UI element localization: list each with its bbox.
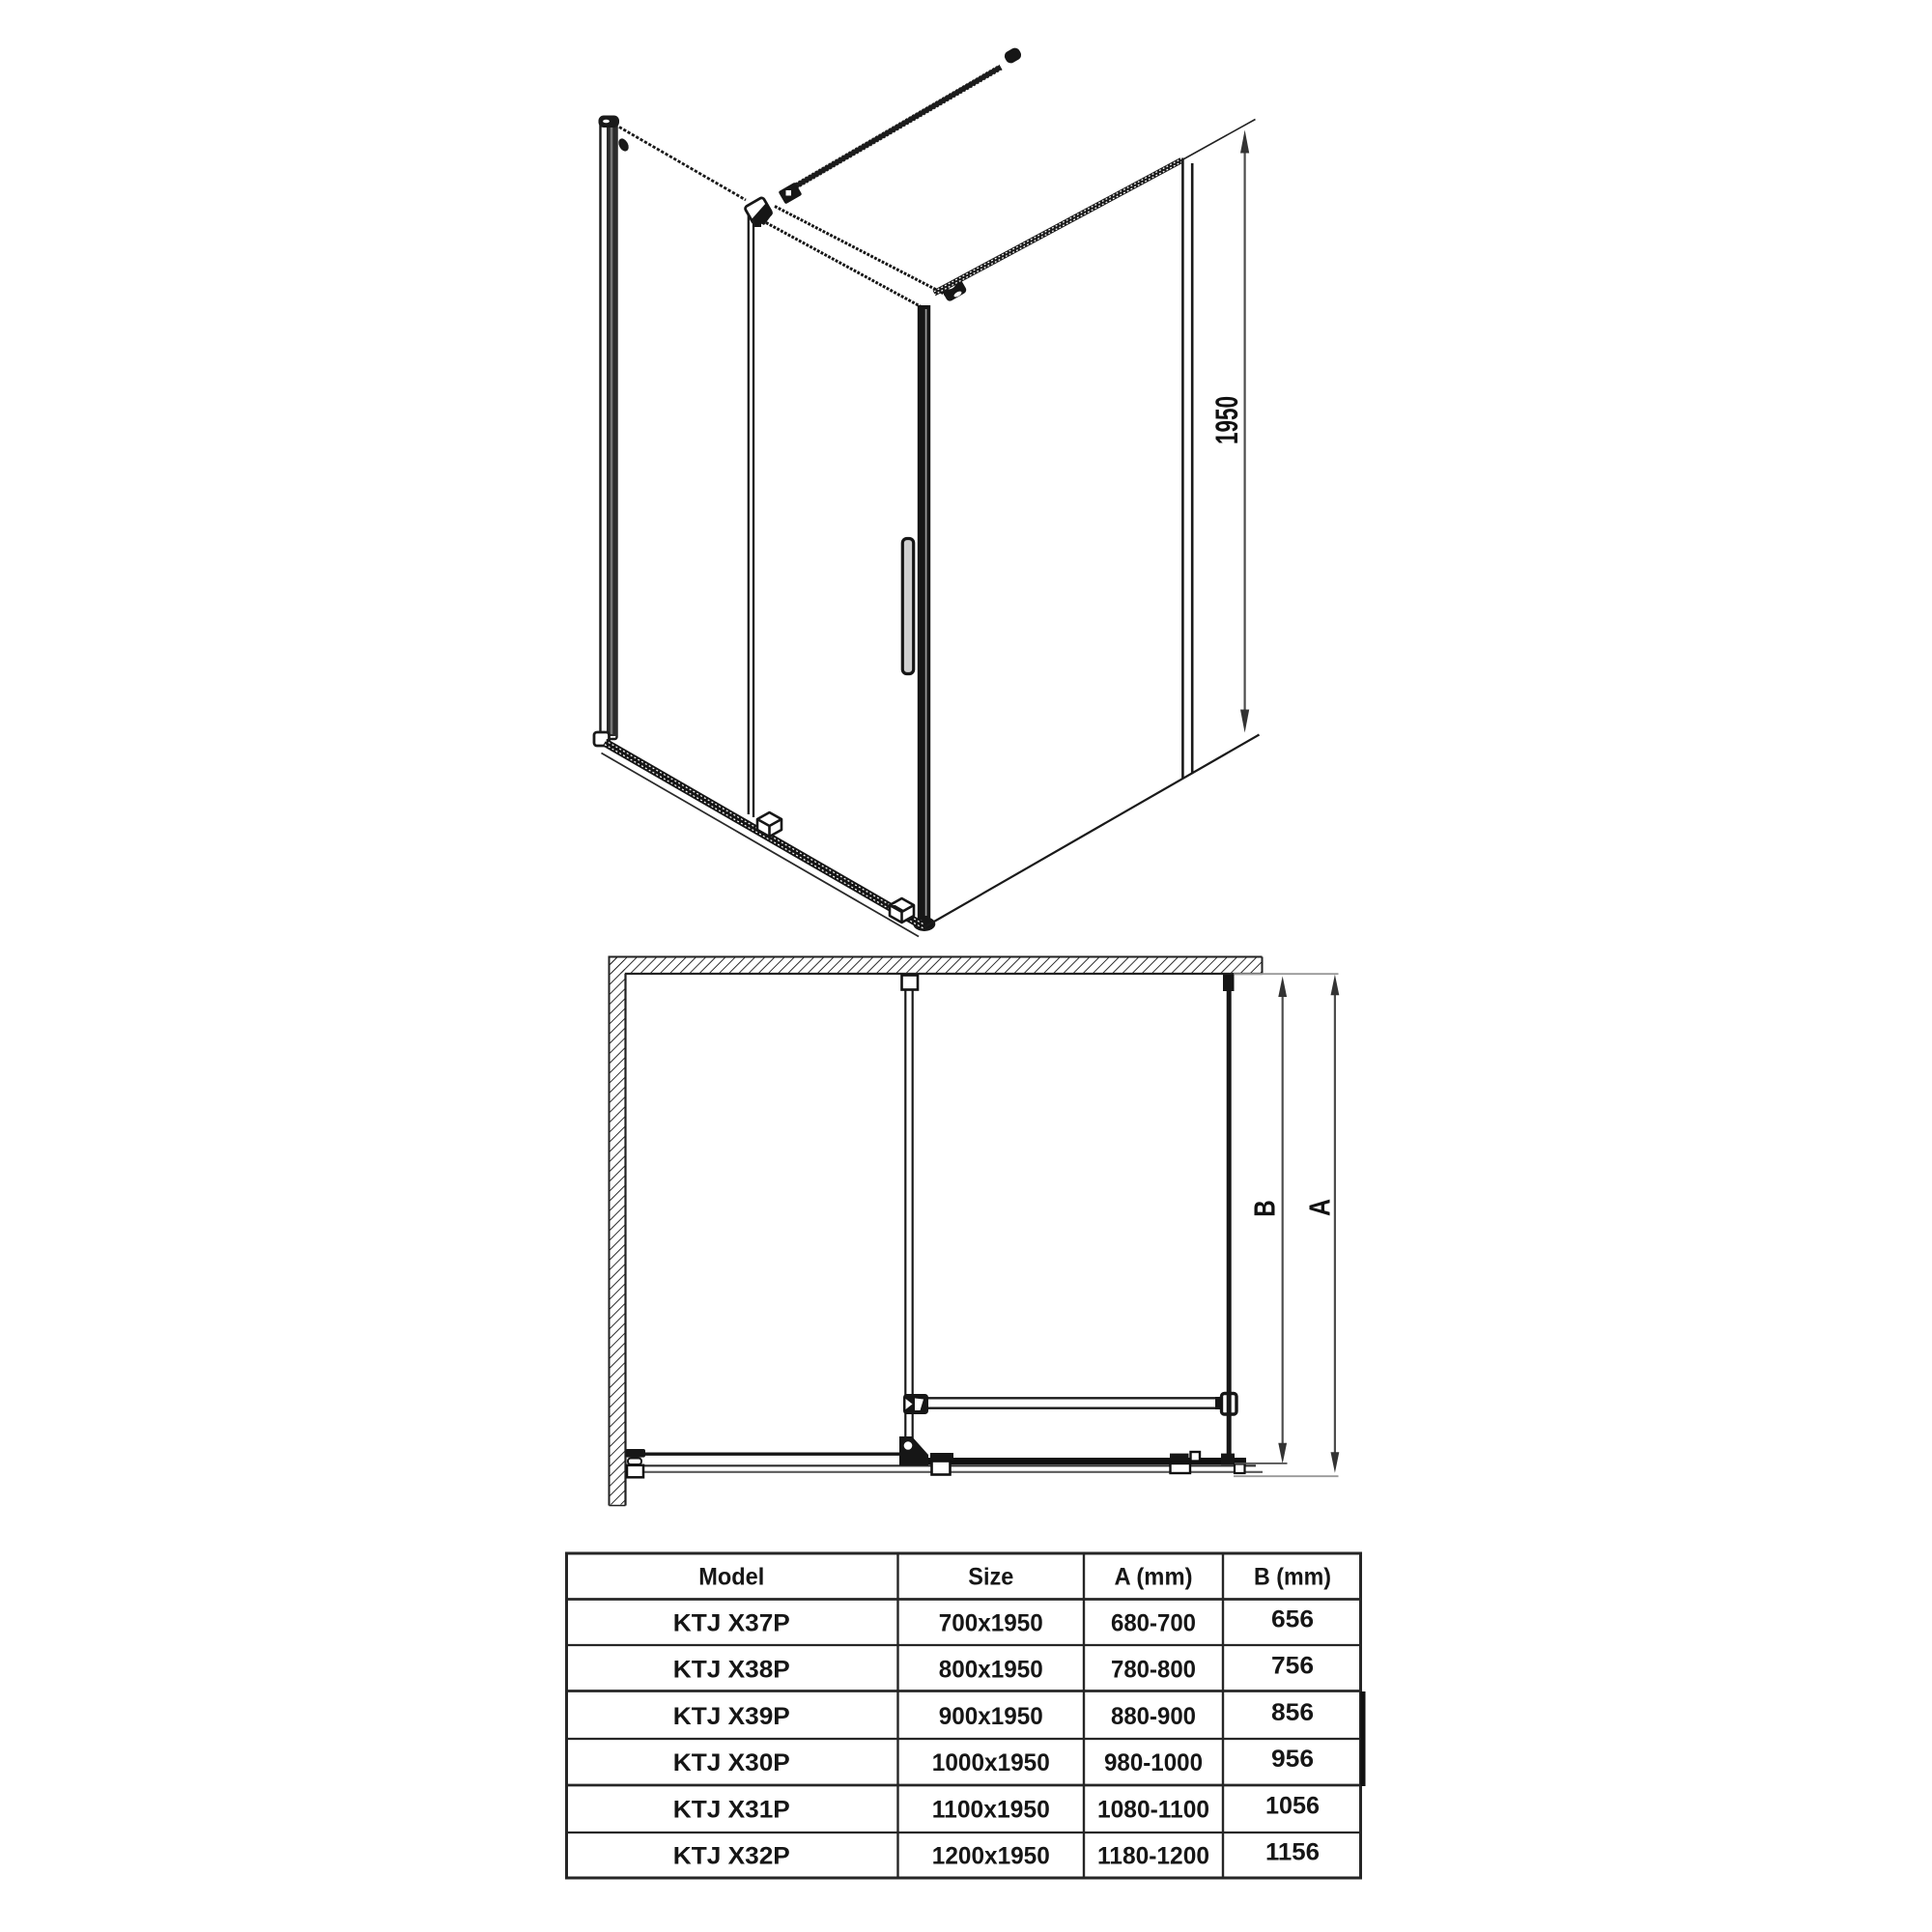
svg-text:756: 756 xyxy=(1271,1653,1314,1680)
svg-text:900x1950: 900x1950 xyxy=(939,1703,1043,1730)
svg-text:1156: 1156 xyxy=(1265,1839,1320,1866)
svg-text:980-1000: 980-1000 xyxy=(1104,1749,1203,1776)
svg-text:656: 656 xyxy=(1271,1605,1314,1633)
svg-text:1180-1200: 1180-1200 xyxy=(1097,1843,1209,1870)
svg-text:1950: 1950 xyxy=(1209,396,1244,444)
svg-text:1200x1950: 1200x1950 xyxy=(932,1843,1050,1870)
svg-text:KTJ X37P: KTJ X37P xyxy=(673,1609,790,1636)
svg-text:B: B xyxy=(1247,1200,1281,1217)
svg-text:880-900: 880-900 xyxy=(1111,1703,1196,1730)
svg-text:KTJ X39P: KTJ X39P xyxy=(673,1703,790,1730)
svg-text:1100x1950: 1100x1950 xyxy=(932,1796,1050,1823)
svg-text:800x1950: 800x1950 xyxy=(939,1657,1043,1684)
svg-text:856: 856 xyxy=(1271,1699,1314,1726)
svg-text:KTJ X30P: KTJ X30P xyxy=(673,1749,790,1776)
svg-text:680-700: 680-700 xyxy=(1111,1609,1196,1636)
svg-text:A (mm): A (mm) xyxy=(1115,1564,1193,1591)
svg-text:1056: 1056 xyxy=(1265,1792,1320,1819)
svg-text:KTJ X38P: KTJ X38P xyxy=(673,1657,790,1684)
svg-text:KTJ X32P: KTJ X32P xyxy=(673,1843,790,1870)
svg-text:A: A xyxy=(1303,1199,1337,1216)
svg-text:956: 956 xyxy=(1271,1746,1314,1773)
svg-text:1000x1950: 1000x1950 xyxy=(932,1749,1050,1776)
svg-text:1080-1100: 1080-1100 xyxy=(1097,1796,1209,1823)
svg-text:700x1950: 700x1950 xyxy=(939,1609,1043,1636)
svg-text:B (mm): B (mm) xyxy=(1254,1564,1331,1591)
svg-text:780-800: 780-800 xyxy=(1111,1657,1196,1684)
svg-text:Size: Size xyxy=(968,1564,1013,1591)
svg-text:KTJ X31P: KTJ X31P xyxy=(673,1796,790,1823)
svg-text:Model: Model xyxy=(698,1564,764,1591)
